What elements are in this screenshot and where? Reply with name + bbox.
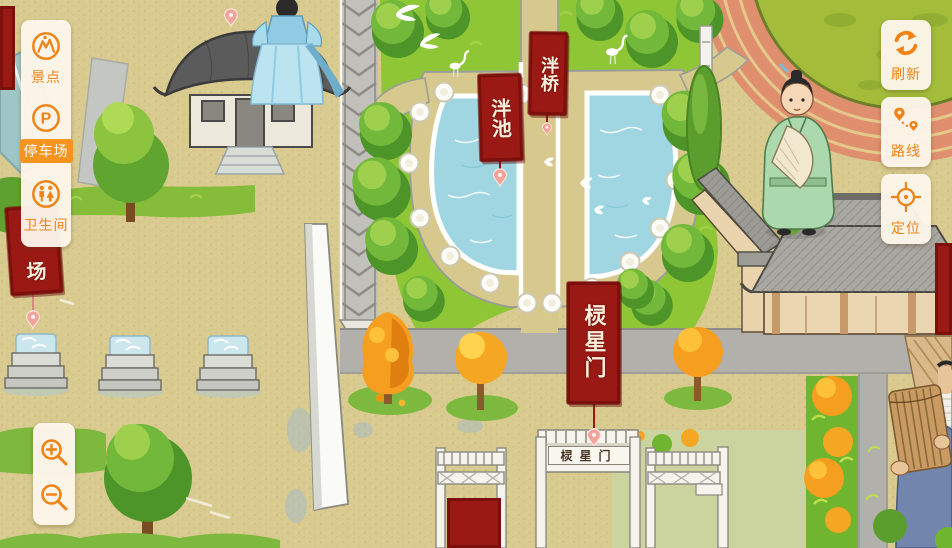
sidebar-item-label: 卫生间 xyxy=(24,215,69,235)
parking-icon: P xyxy=(30,102,62,134)
svg-text:P: P xyxy=(41,111,52,128)
map-label-lingxing-gate[interactable]: 棂星门 xyxy=(567,282,620,404)
route-icon xyxy=(890,104,922,136)
refresh-label: 刷新 xyxy=(891,64,921,84)
route-button[interactable]: 路线 xyxy=(881,97,931,167)
map-label-pan-bridge[interactable]: 泮桥 xyxy=(528,32,567,116)
sidebar-item-label: 景点 xyxy=(31,67,61,87)
refresh-button[interactable]: 刷新 xyxy=(881,20,931,90)
zoom-out-button[interactable] xyxy=(38,481,70,513)
sidebar-panel: 景点 P 停车场 卫生间 xyxy=(21,20,71,247)
zoom-in-button[interactable] xyxy=(38,436,70,468)
scenic-spot-icon xyxy=(30,30,62,62)
map-label-pan-pond[interactable]: 泮池 xyxy=(478,73,523,161)
sidebar-item-restroom[interactable]: 卫生间 xyxy=(24,178,69,235)
gate-plaque: 棂星门 xyxy=(548,446,630,465)
sidebar-item-label: 停车场 xyxy=(20,139,73,163)
scenic-map-illustration xyxy=(0,0,952,548)
sidebar-item-scenic[interactable]: 景点 xyxy=(30,30,62,87)
sidebar-item-parking[interactable]: P 停车场 xyxy=(20,102,73,163)
route-label: 路线 xyxy=(891,141,921,161)
restroom-icon xyxy=(30,178,62,210)
map-banner-partial-bottom xyxy=(447,498,501,548)
locate-button[interactable]: 定位 xyxy=(881,174,931,244)
refresh-icon xyxy=(890,27,922,59)
stone-monuments xyxy=(3,334,261,398)
locate-icon xyxy=(890,181,922,213)
zoom-controls xyxy=(33,423,75,525)
map-canvas[interactable]: 场 泮池 泮桥 棂星门 棂星门 景点 P 停车场 卫生间 xyxy=(0,0,952,548)
zoom-in-icon xyxy=(38,436,70,468)
locate-label: 定位 xyxy=(891,218,921,238)
map-banner-partial-right xyxy=(935,243,952,335)
map-banner-partial-top-left xyxy=(0,6,15,90)
zoom-out-icon xyxy=(38,481,70,513)
